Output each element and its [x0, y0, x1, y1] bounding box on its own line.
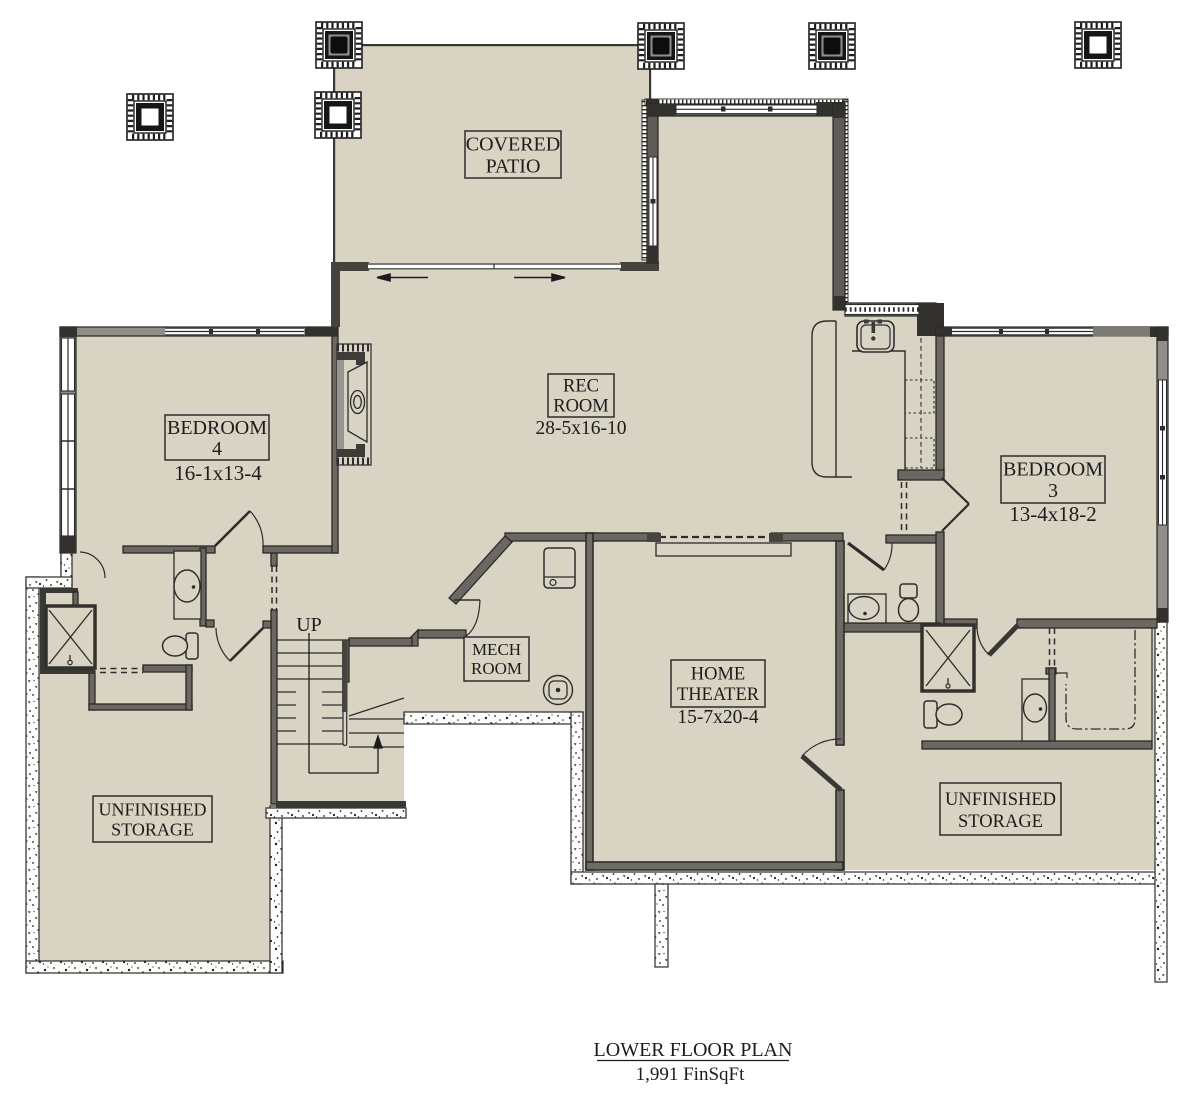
- svg-text:4: 4: [212, 438, 222, 460]
- svg-text:REC: REC: [563, 377, 599, 397]
- svg-text:13-4x18-2: 13-4x18-2: [1009, 502, 1097, 526]
- svg-text:28-5x16-10: 28-5x16-10: [536, 418, 627, 439]
- svg-text:UNFINISHED: UNFINISHED: [945, 790, 1056, 810]
- svg-text:MECH: MECH: [472, 640, 521, 659]
- svg-text:BEDROOM: BEDROOM: [167, 417, 267, 439]
- svg-text:1,991 FinSqFt: 1,991 FinSqFt: [636, 1064, 745, 1085]
- svg-text:LOWER FLOOR PLAN: LOWER FLOOR PLAN: [594, 1039, 793, 1061]
- svg-text:15-7x20-4: 15-7x20-4: [677, 707, 758, 728]
- svg-text:HOME: HOME: [691, 665, 745, 685]
- svg-text:STORAGE: STORAGE: [111, 820, 194, 840]
- svg-text:16-1x13-4: 16-1x13-4: [174, 461, 262, 485]
- svg-text:ROOM: ROOM: [553, 397, 609, 417]
- svg-text:COVERED: COVERED: [466, 134, 560, 156]
- svg-text:UNFINISHED: UNFINISHED: [99, 800, 207, 820]
- svg-text:PATIO: PATIO: [486, 156, 541, 178]
- svg-text:STORAGE: STORAGE: [958, 812, 1043, 832]
- svg-text:ROOM: ROOM: [471, 659, 522, 678]
- svg-text:THEATER: THEATER: [677, 685, 760, 705]
- svg-text:BEDROOM: BEDROOM: [1003, 459, 1103, 481]
- svg-text:3: 3: [1048, 480, 1058, 502]
- svg-text:UP: UP: [296, 614, 322, 636]
